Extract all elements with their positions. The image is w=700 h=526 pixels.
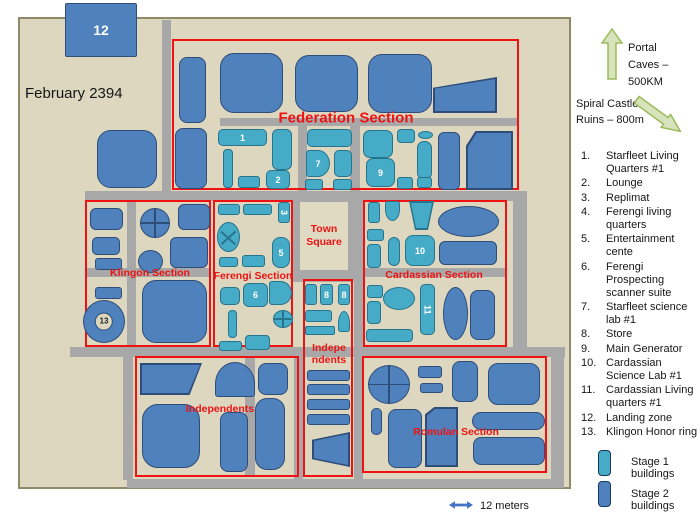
building — [295, 55, 358, 112]
key-item-number: 10. — [581, 357, 606, 383]
north-arrow-icon — [601, 28, 623, 80]
building-number: 9 — [378, 168, 383, 178]
key-item: 1.Starfleet Living Quarters #1 — [581, 150, 699, 176]
section-independents-label: Independents — [186, 403, 254, 415]
building — [238, 176, 260, 188]
building — [418, 131, 433, 139]
stage2-swatch-icon — [598, 481, 611, 507]
building — [439, 241, 497, 265]
building-fill — [142, 365, 200, 393]
building-13: 13 — [83, 300, 125, 343]
building-number: 11 — [423, 305, 433, 315]
building — [170, 237, 208, 268]
building-1: 1 — [218, 129, 267, 146]
key-item: 9.Main Generator — [581, 343, 699, 356]
building — [418, 366, 442, 378]
building-fill — [468, 133, 511, 188]
building-2: 2 — [266, 170, 290, 189]
building-8: 8 — [320, 284, 333, 305]
building — [179, 57, 206, 123]
portal-caves-label: Portal Caves – 500KM — [628, 40, 686, 91]
building-number: 8 — [341, 290, 346, 300]
building-number: 12 — [93, 22, 109, 38]
town-square: Town Square — [300, 202, 348, 270]
key-item-label: Entertainment cente — [606, 233, 699, 259]
key-item: 5.Entertainment cente — [581, 233, 699, 259]
building — [95, 287, 122, 299]
road — [127, 479, 564, 488]
building — [217, 222, 240, 252]
key-item: 2.Lounge — [581, 177, 699, 190]
building — [305, 284, 317, 305]
building — [242, 255, 265, 267]
building — [272, 129, 292, 170]
building-number: 7 — [315, 159, 320, 169]
building — [470, 290, 495, 340]
road — [551, 357, 564, 479]
building — [228, 310, 237, 338]
section-independents-mid-label: Indepe ndents — [312, 342, 346, 366]
building — [215, 362, 255, 397]
key-item-label: Landing zone — [606, 412, 699, 425]
building-5: 5 — [272, 237, 290, 268]
key-item: 12.Landing zone — [581, 412, 699, 425]
building — [371, 408, 382, 435]
building — [269, 281, 292, 305]
key-item: 4.Ferengi living quarters — [581, 206, 699, 232]
scale-label: 12 meters — [480, 500, 529, 512]
key-item: 3.Replimat — [581, 192, 699, 205]
building — [307, 384, 350, 395]
building-number: 2 — [275, 175, 280, 185]
scale-arrow-icon — [448, 497, 474, 515]
building — [367, 229, 384, 241]
building — [97, 130, 157, 188]
building — [305, 179, 323, 190]
town-square-label: Town Square — [300, 223, 348, 249]
building-number: 5 — [278, 248, 283, 258]
building — [367, 301, 381, 324]
building — [245, 335, 270, 350]
building-key-list: 1.Starfleet Living Quarters #12.Lounge3.… — [581, 150, 699, 440]
building — [473, 437, 545, 465]
building — [397, 177, 413, 189]
building — [397, 129, 415, 143]
building-fill — [411, 203, 432, 228]
key-item: 7.Starfleet science lab #1 — [581, 301, 699, 327]
building — [443, 287, 468, 340]
stage1-legend-label: Stage 1 buildings — [631, 456, 700, 480]
building — [417, 141, 432, 180]
key-item-number: 12. — [581, 412, 606, 425]
building — [466, 131, 513, 190]
key-item-number: 2. — [581, 177, 606, 190]
building — [90, 208, 123, 230]
building — [243, 204, 272, 215]
building-7: 7 — [306, 150, 330, 177]
building — [219, 341, 242, 351]
cross-line — [282, 310, 284, 328]
building-12: 12 — [65, 3, 137, 57]
cross-line — [154, 208, 156, 238]
ring-center: 13 — [95, 312, 113, 331]
building — [334, 150, 352, 177]
building — [338, 311, 350, 332]
building — [388, 409, 422, 468]
key-item-label: Lounge — [606, 177, 699, 190]
building-number: 10 — [415, 246, 425, 256]
building — [367, 244, 381, 268]
building — [305, 310, 332, 322]
key-item-label: Ferengi living quarters — [606, 206, 699, 232]
key-item-label: Cardassian Science Lab #1 — [606, 357, 699, 383]
building — [367, 285, 383, 298]
building — [420, 383, 443, 393]
building — [92, 237, 120, 255]
road — [513, 191, 527, 357]
building — [368, 365, 410, 404]
key-item: 8.Store — [581, 328, 699, 341]
building — [417, 177, 432, 188]
key-item: 11.Cardassian Living quarters #1 — [581, 384, 699, 410]
section-romulan-label: Romulan Section — [413, 426, 499, 438]
building — [368, 54, 432, 113]
key-item-number: 3. — [581, 192, 606, 205]
building — [273, 310, 293, 328]
building-fill — [314, 434, 348, 465]
road — [162, 20, 171, 191]
stage2-legend-label: Stage 2 buildings — [631, 488, 700, 512]
building-11: 11 — [420, 284, 435, 335]
building — [488, 363, 540, 405]
building — [220, 53, 283, 113]
building — [388, 237, 400, 266]
building — [307, 370, 350, 381]
key-item-number: 8. — [581, 328, 606, 341]
building-number: 6 — [253, 290, 258, 300]
key-item-number: 13. — [581, 426, 606, 439]
key-item-label: Main Generator — [606, 343, 699, 356]
building-8: 8 — [338, 284, 350, 305]
key-item: 13.Klingon Honor ring — [581, 426, 699, 439]
key-item-label: Replimat — [606, 192, 699, 205]
building — [366, 329, 413, 342]
building — [142, 280, 207, 343]
building — [140, 208, 170, 238]
building — [307, 399, 350, 410]
building-number: 8 — [324, 290, 329, 300]
section-ferengi-label: Ferengi Section — [214, 270, 293, 282]
building — [255, 398, 285, 470]
section-cardassian-label: Cardassian Section — [385, 269, 482, 281]
key-item-number: 11. — [581, 384, 606, 410]
settlement-map-page: February 2394 Portal Caves – 500KM Spira… — [0, 0, 700, 526]
scale-bar: 12 meters — [448, 497, 529, 515]
building — [220, 412, 248, 472]
building — [258, 363, 288, 395]
key-item-number: 6. — [581, 261, 606, 301]
section-klingon-label: Klingon Section — [110, 267, 190, 279]
key-item-label: Store — [606, 328, 699, 341]
key-item-number: 9. — [581, 343, 606, 356]
building-9: 9 — [366, 158, 395, 187]
date-label: February 2394 — [25, 85, 123, 102]
building — [178, 204, 210, 230]
building — [305, 326, 335, 335]
cross-line — [388, 365, 390, 404]
building — [333, 179, 352, 190]
key-item-label: Cardassian Living quarters #1 — [606, 384, 699, 410]
key-item-number: 1. — [581, 150, 606, 176]
building — [175, 128, 207, 189]
key-item-label: Starfleet science lab #1 — [606, 301, 699, 327]
building-6: 6 — [243, 283, 268, 307]
key-item-number: 4. — [581, 206, 606, 232]
building — [452, 361, 478, 402]
key-item-number: 7. — [581, 301, 606, 327]
key-item-number: 5. — [581, 233, 606, 259]
building-3: 3 — [278, 202, 290, 223]
road — [123, 357, 133, 480]
building-number: 1 — [240, 133, 245, 143]
building — [307, 129, 352, 147]
section-federation-label: Federation Section — [278, 109, 413, 126]
building — [219, 257, 238, 267]
building-10: 10 — [405, 235, 435, 266]
key-item-label: Starfleet Living Quarters #1 — [606, 150, 699, 176]
building — [223, 149, 233, 188]
key-item: 6.Ferengi Prospecting scanner suite — [581, 261, 699, 301]
building — [218, 204, 240, 215]
stage1-swatch-icon — [598, 450, 611, 476]
building — [368, 202, 380, 223]
building — [307, 414, 350, 425]
key-item: 10.Cardassian Science Lab #1 — [581, 357, 699, 383]
building-number: 3 — [279, 210, 289, 215]
building — [363, 130, 393, 158]
key-item-label: Klingon Honor ring — [606, 426, 699, 439]
building — [438, 132, 460, 190]
key-item-label: Ferengi Prospecting scanner suite — [606, 261, 699, 301]
building — [220, 287, 240, 305]
building — [383, 287, 415, 310]
building — [438, 206, 499, 237]
